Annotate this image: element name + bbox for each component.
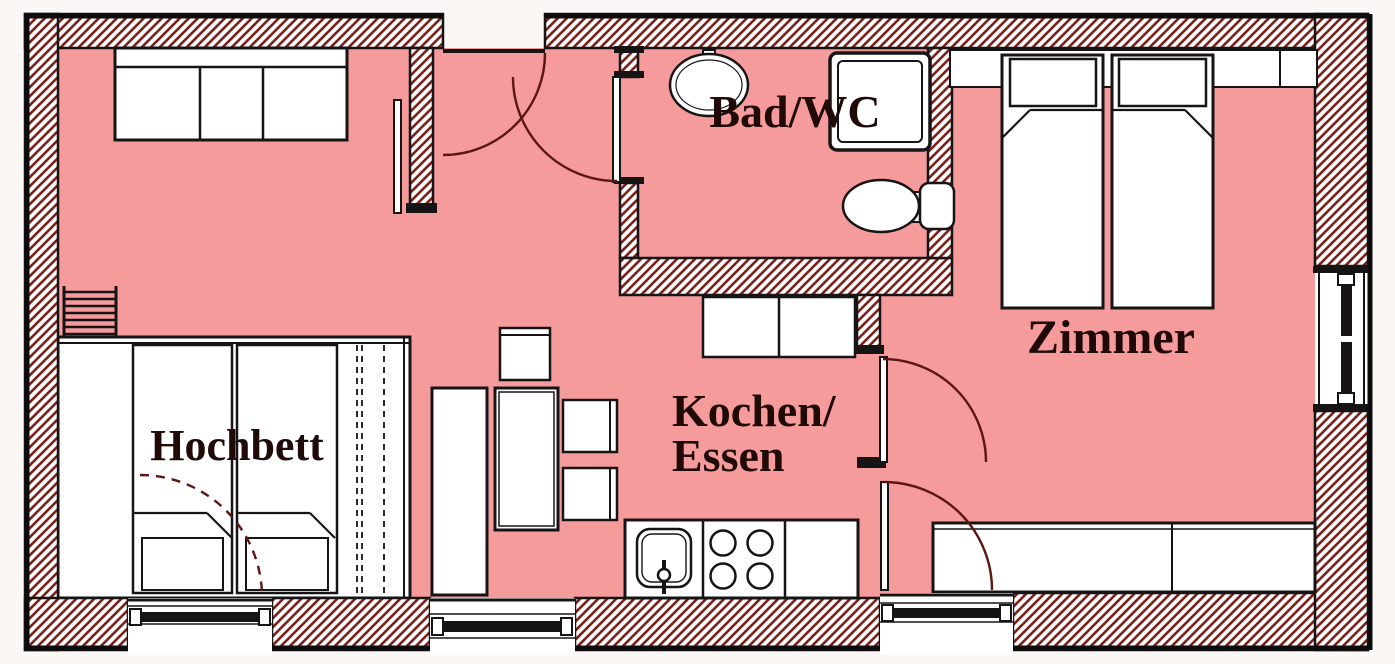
label-zimmer: Zimmer <box>1027 311 1195 364</box>
pillow-left <box>142 538 223 590</box>
pillow-right <box>246 538 328 590</box>
entrance-opening <box>446 12 542 46</box>
wall-right-upper <box>1315 14 1368 266</box>
wall-bottom-2 <box>272 598 430 650</box>
loft-window-bottom <box>128 598 272 655</box>
dining-chair-right-2 <box>563 468 617 520</box>
wall-pier-bath-lower <box>620 183 638 258</box>
wall-bottom-1 <box>25 598 128 650</box>
wall-top-left <box>25 14 443 48</box>
wall-pier-living <box>410 48 433 208</box>
label-hochbett: Hochbett <box>150 421 324 470</box>
sofa <box>115 48 347 140</box>
pillow-left <box>1010 59 1096 106</box>
dining-chair-right-1 <box>563 400 617 452</box>
pillow-right <box>1119 59 1206 106</box>
toilet-cistern <box>920 183 954 229</box>
wall-top-right <box>545 14 1368 48</box>
kitchen-cupboard <box>703 297 855 357</box>
wall-bottom-kitchen <box>575 598 880 650</box>
toilet <box>843 180 919 232</box>
wall-bath-bottom <box>620 258 952 295</box>
living-room-door-leaf <box>394 100 401 213</box>
floor-plan: Hochbett Kochen/ Essen Bad/WC Zimmer <box>0 0 1395 664</box>
zimmer-door-upper-leaf <box>880 357 887 462</box>
bathroom-door-leaf <box>613 77 620 182</box>
entrance-threshold <box>443 49 545 53</box>
label-bad-wc: Bad/WC <box>709 86 880 137</box>
floor-plan-drawing: Hochbett Kochen/ Essen Bad/WC Zimmer <box>0 0 1395 664</box>
zimmer-window-right <box>1315 273 1370 404</box>
dining-table <box>495 388 558 530</box>
zimmer-doorway-floor <box>857 352 880 598</box>
bath-doorway-floor <box>620 77 638 183</box>
kitchen-side-counter <box>432 388 487 595</box>
sideboard <box>933 523 1315 592</box>
label-essen: Essen <box>672 430 784 481</box>
label-kochen: Kochen/ <box>672 385 837 436</box>
wall-pier-zimmer <box>857 295 880 352</box>
kitchen-window-bottom <box>430 598 575 655</box>
wall-left <box>25 14 58 650</box>
zimmer-window-bottom <box>880 593 1013 655</box>
kitchen-counter <box>625 520 858 598</box>
wall-right-lower <box>1315 411 1368 650</box>
zimmer-door-lower-leaf <box>881 482 888 590</box>
